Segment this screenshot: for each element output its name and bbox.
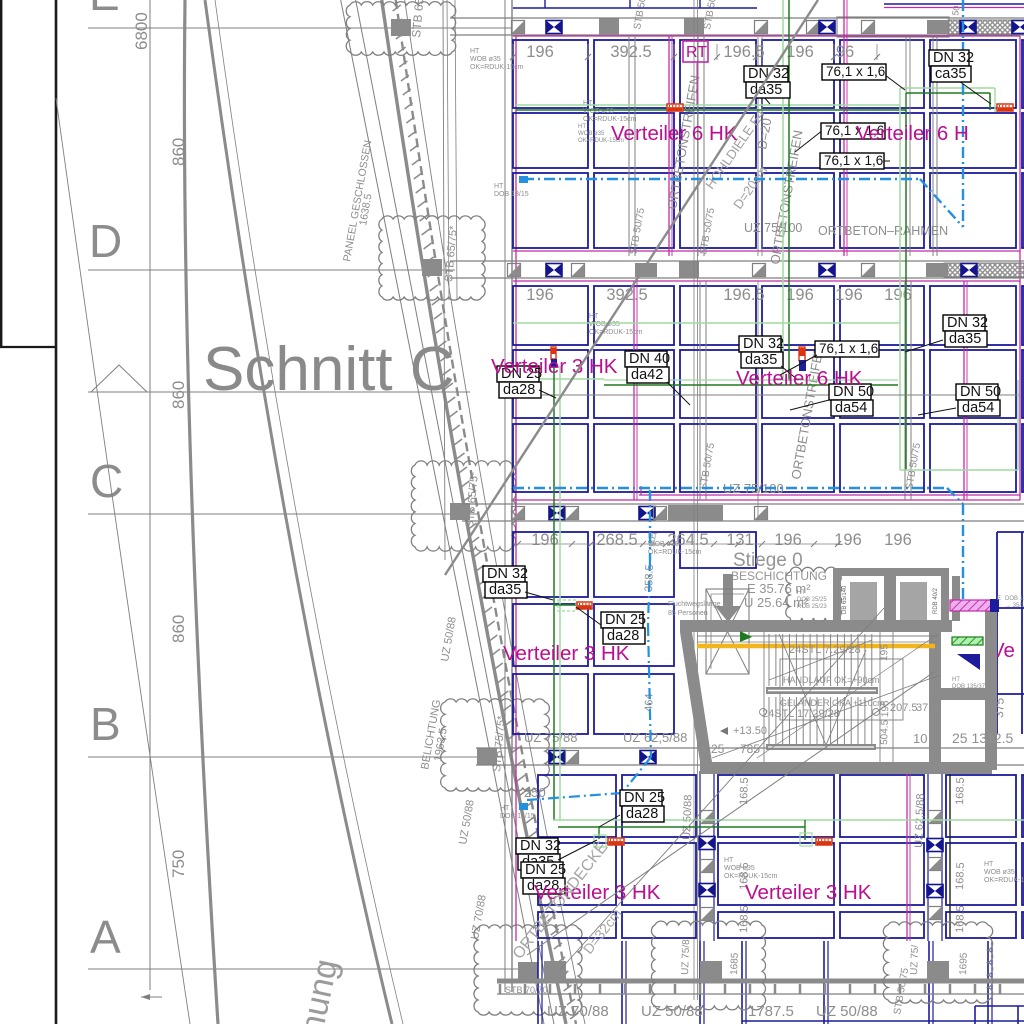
svg-text:96: 96: [836, 43, 854, 61]
svg-text:STB 70/70: STB 70/70: [505, 985, 548, 995]
svg-text:WOB ø35: WOB ø35: [470, 56, 501, 63]
svg-text:da42: da42: [631, 367, 663, 383]
svg-text:DN 32: DN 32: [947, 315, 988, 331]
svg-text:168.5: 168.5: [738, 905, 751, 933]
svg-text:DN 32: DN 32: [933, 50, 974, 66]
svg-text:12.5: 12.5: [986, 730, 1013, 746]
svg-text:OK=RDUK-15cm: OK=RDUK-15cm: [648, 549, 702, 556]
svg-text:196: 196: [835, 286, 863, 304]
svg-text:+13.50: +13.50: [733, 725, 767, 737]
svg-text:195: 195: [879, 644, 891, 661]
svg-text:DOB 25/25: DOB 25/25: [797, 597, 827, 603]
svg-text:WOB ø35: WOB ø35: [583, 108, 614, 115]
svg-text:Verteiler 6 HK: Verteiler 6 HK: [611, 122, 738, 145]
svg-text:DN 40: DN 40: [629, 351, 670, 367]
svg-text:WOB ø35: WOB ø35: [589, 321, 620, 328]
svg-text:RT: RT: [686, 44, 707, 61]
svg-text:HT: HT: [984, 861, 994, 868]
svg-text:→ 35/100: → 35/100: [1005, 603, 1024, 609]
svg-text:1695: 1695: [958, 952, 970, 975]
svg-text:D: D: [89, 215, 122, 267]
svg-text:Verteiler 6 HK: Verteiler 6 HK: [736, 367, 863, 390]
svg-text:DOB 13/15: DOB 13/15: [494, 191, 529, 198]
svg-text:131: 131: [726, 531, 754, 549]
svg-text:Schnitt C: Schnitt C: [203, 335, 455, 404]
svg-text:UZ 75/88: UZ 75/88: [524, 730, 577, 745]
svg-text:ca35: ca35: [935, 66, 966, 82]
svg-text:85 Personen: 85 Personen: [668, 610, 708, 617]
svg-text:207.5: 207.5: [890, 702, 918, 714]
svg-text:196: 196: [884, 286, 912, 304]
svg-text:1787.5: 1787.5: [748, 1003, 794, 1020]
svg-text:WOB ø35: WOB ø35: [578, 131, 605, 137]
svg-text:DN 32: DN 32: [487, 566, 528, 582]
svg-text:37.5: 37.5: [916, 702, 937, 714]
svg-text:168.5: 168.5: [954, 905, 967, 933]
svg-text:196.5: 196.5: [723, 43, 764, 61]
svg-text:DN 32: DN 32: [520, 838, 561, 854]
svg-text:392.5: 392.5: [610, 43, 651, 61]
svg-text:da35: da35: [489, 582, 521, 598]
svg-text:375: 375: [992, 697, 1007, 718]
svg-text:OK=RDUK-15cm: OK=RDUK-15cm: [589, 329, 643, 336]
svg-text:OK=RDUK-15cm: OK=RDUK-15cm: [470, 64, 524, 71]
svg-text:HT: HT: [797, 590, 805, 596]
svg-text:76,1 x 1,6: 76,1 x 1,6: [826, 64, 885, 79]
svg-text:E: E: [89, 0, 120, 20]
svg-text:24STL 17.29/28: 24STL 17.29/28: [762, 708, 840, 720]
svg-text:1685: 1685: [729, 952, 741, 975]
svg-text:750: 750: [169, 850, 188, 878]
svg-text:UZ 62,5/88: UZ 62,5/88: [623, 730, 687, 745]
svg-text:HT: HT: [494, 183, 504, 190]
svg-text:UZ 50/88: UZ 50/88: [641, 1003, 703, 1020]
svg-text:6800: 6800: [132, 12, 151, 50]
svg-text:DN 25: DN 25: [624, 790, 665, 806]
svg-text:HT: HT: [724, 857, 734, 864]
svg-text:DOB 135/375: DOB 135/375: [952, 684, 989, 690]
svg-text:RDB 40/2: RDB 40/2: [933, 587, 939, 614]
svg-text:168.5: 168.5: [954, 777, 967, 805]
svg-text:HT: HT: [500, 805, 510, 812]
svg-text:Verteiler 6 H: Verteiler 6 H: [856, 122, 969, 145]
svg-text:da35: da35: [949, 331, 981, 347]
svg-text:DN 25: DN 25: [525, 862, 566, 878]
svg-text:UZ 75/8: UZ 75/8: [680, 939, 692, 975]
svg-text:DOB 15/15: DOB 15/15: [500, 813, 535, 820]
svg-text:168.5: 168.5: [954, 862, 967, 890]
svg-text:ROB 136/375: ROB 136/375: [952, 691, 989, 697]
svg-text:HT: HT: [578, 124, 586, 130]
svg-text:E: E: [997, 596, 1001, 602]
svg-text:196: 196: [774, 531, 802, 549]
svg-text:DN 32: DN 32: [743, 336, 784, 352]
svg-text:ROB 25/23: ROB 25/23: [797, 604, 827, 610]
svg-text:196: 196: [834, 531, 862, 549]
svg-text:Verteiler 3 HK: Verteiler 3 HK: [503, 642, 630, 665]
svg-text:da54: da54: [962, 400, 994, 416]
svg-text:76,1 x 1,6: 76,1 x 1,6: [824, 153, 883, 168]
svg-text:196.5: 196.5: [723, 286, 764, 304]
svg-text:HT: HT: [583, 100, 593, 107]
svg-text:10: 10: [913, 731, 927, 746]
svg-text:196: 196: [786, 286, 814, 304]
svg-text:Verteiler 3 HK: Verteiler 3 HK: [491, 355, 618, 378]
svg-text:196: 196: [884, 531, 912, 549]
svg-text:Verteiler 3 HK: Verteiler 3 HK: [745, 881, 872, 904]
svg-text:DN 50: DN 50: [960, 384, 1001, 400]
svg-text:DN 32: DN 32: [748, 66, 789, 82]
svg-text:da28: da28: [626, 806, 658, 822]
svg-text:A: A: [90, 911, 121, 963]
svg-text:B: B: [90, 698, 121, 750]
svg-text:76,1 x 1,6: 76,1 x 1,6: [819, 341, 878, 356]
svg-text:196: 196: [526, 43, 554, 61]
svg-text:C: C: [90, 455, 123, 507]
svg-text:50: 50: [950, 5, 962, 17]
svg-text:DB 65/140: DB 65/140: [842, 585, 848, 614]
svg-text:UZ 50/88: UZ 50/88: [816, 1003, 878, 1020]
svg-text:da54: da54: [835, 400, 867, 416]
svg-text:WOB ø35: WOB ø35: [984, 869, 1015, 876]
svg-text:268.5: 268.5: [596, 531, 637, 549]
svg-text:da35: da35: [745, 352, 777, 368]
svg-text:HT: HT: [589, 313, 599, 320]
svg-text:196: 196: [786, 43, 814, 61]
svg-text:50: 50: [647, 537, 657, 547]
svg-text:860: 860: [169, 615, 188, 643]
svg-text:504.5 195: 504.5 195: [879, 700, 892, 745]
svg-text:ORTBETON–RAHMEN: ORTBETON–RAHMEN: [818, 224, 948, 238]
svg-text:OK=RDUK-15cm: OK=RDUK-15cm: [984, 877, 1024, 884]
svg-text:250: 250: [524, 785, 546, 800]
svg-text:UZ 50/88: UZ 50/88: [681, 794, 695, 840]
svg-text:860: 860: [169, 381, 188, 409]
svg-text:OK=RDUK-15cm: OK=RDUK-15cm: [724, 873, 778, 880]
svg-text:HT: HT: [470, 48, 480, 55]
svg-text:HT: HT: [952, 677, 960, 683]
svg-text:UZ 70/88: UZ 70/88: [547, 1003, 609, 1020]
svg-text:196: 196: [526, 286, 554, 304]
svg-text:da28: da28: [503, 382, 535, 398]
svg-text:DOB 135/100: DOB 135/100: [1005, 596, 1024, 602]
svg-text:DN 25: DN 25: [605, 612, 646, 628]
